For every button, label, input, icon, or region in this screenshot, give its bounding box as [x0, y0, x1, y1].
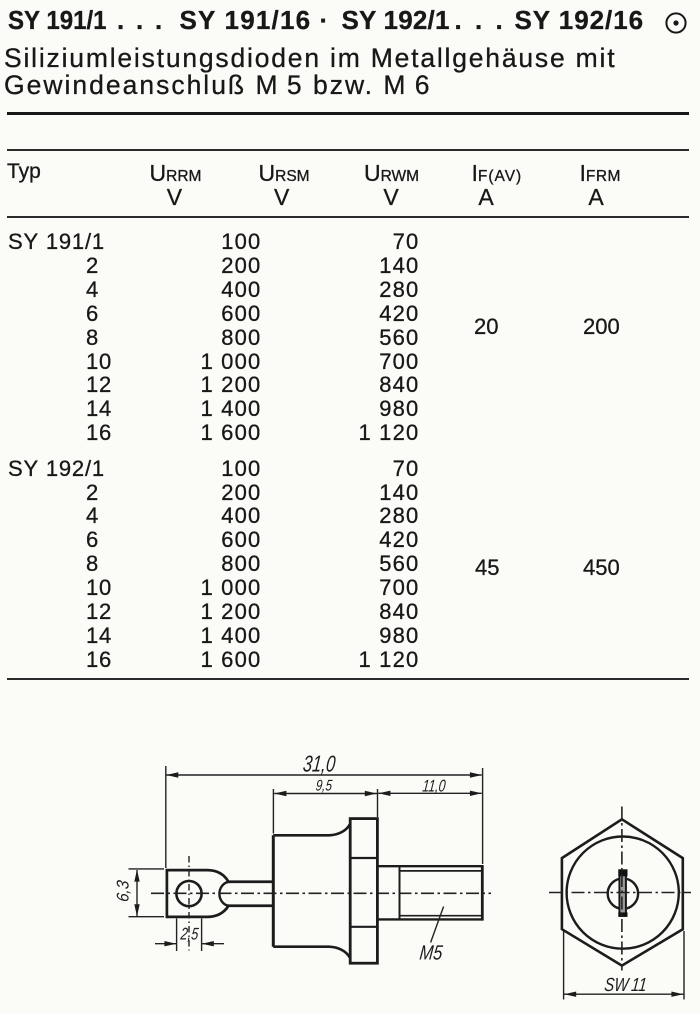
svg-text:SW 11: SW 11 — [603, 974, 647, 995]
svg-text:2,5: 2,5 — [179, 925, 200, 944]
svg-text:31,0: 31,0 — [302, 752, 338, 777]
svg-text:9,5: 9,5 — [315, 777, 333, 794]
svg-text:M5: M5 — [419, 941, 445, 964]
svg-text:11,0: 11,0 — [422, 778, 447, 796]
svg-text:6,3: 6,3 — [114, 879, 133, 902]
